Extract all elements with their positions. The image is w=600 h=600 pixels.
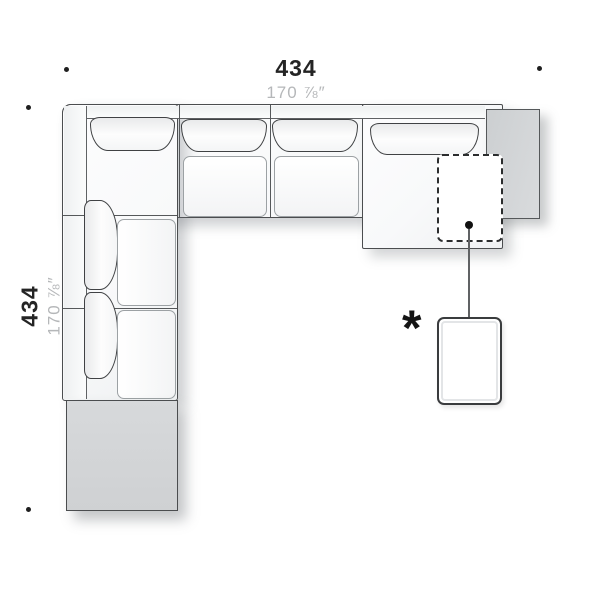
seat-cushion: [274, 156, 359, 217]
back-cushion: [90, 117, 175, 151]
seat-divider-line: [270, 105, 271, 217]
leader-dot: [465, 221, 473, 229]
movable-unit: [437, 317, 502, 405]
left-dimension-label: 434 170 ⅞″: [17, 237, 63, 376]
back-cushion: [84, 200, 118, 290]
seat-cushion: [117, 310, 176, 399]
left-dimension-inches: 170 ⅞″: [45, 237, 65, 376]
top-dimension-label: 434 170 ⅞″: [150, 55, 442, 103]
back-cushion: [370, 123, 479, 155]
back-cushion: [181, 119, 267, 152]
seat-cushion: [117, 219, 176, 306]
movable-unit-inner-seam: [441, 321, 498, 401]
back-cushion: [272, 119, 358, 152]
end-bench-panel: [66, 400, 178, 511]
sectional-sofa-plan-diagram: * 434 170 ⅞″ 434 170 ⅞″: [0, 0, 600, 600]
seat-divider-line: [63, 215, 177, 216]
leader-line: [468, 229, 470, 318]
dimension-dot-top-left: [64, 67, 69, 72]
seat-cushion: [183, 156, 267, 217]
top-dimension-inches: 170 ⅞″: [150, 83, 442, 103]
top-dimension-cm: 434: [150, 55, 442, 82]
dimension-dot-top-right: [537, 66, 542, 71]
left-dimension-cm: 434: [17, 237, 44, 376]
asterisk-marker: *: [402, 303, 421, 353]
dimension-dot-left-top: [26, 105, 31, 110]
seat-divider-line: [179, 105, 180, 217]
back-cushion: [84, 292, 118, 379]
dimension-dot-left-bottom: [26, 507, 31, 512]
